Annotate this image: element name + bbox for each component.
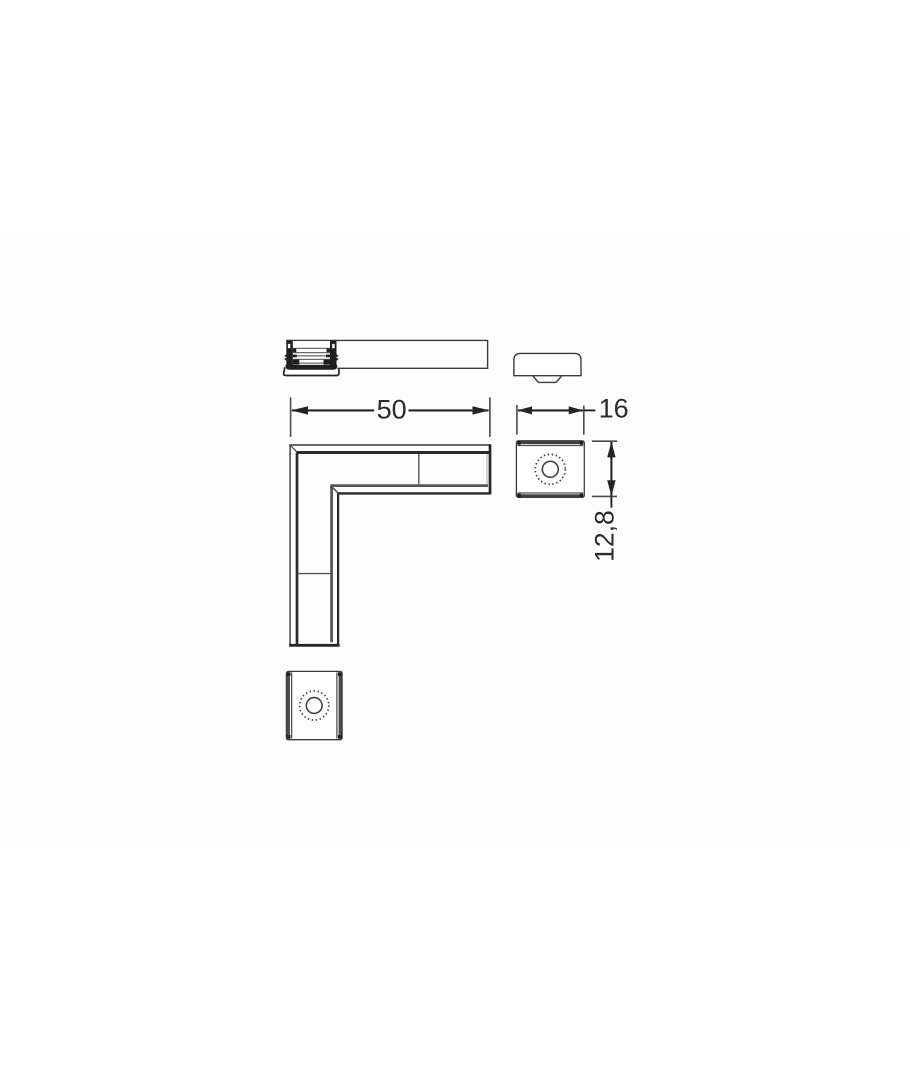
svg-text:12,8: 12,8 [590,510,620,562]
svg-text:16: 16 [599,393,629,423]
svg-text:50: 50 [377,395,407,425]
